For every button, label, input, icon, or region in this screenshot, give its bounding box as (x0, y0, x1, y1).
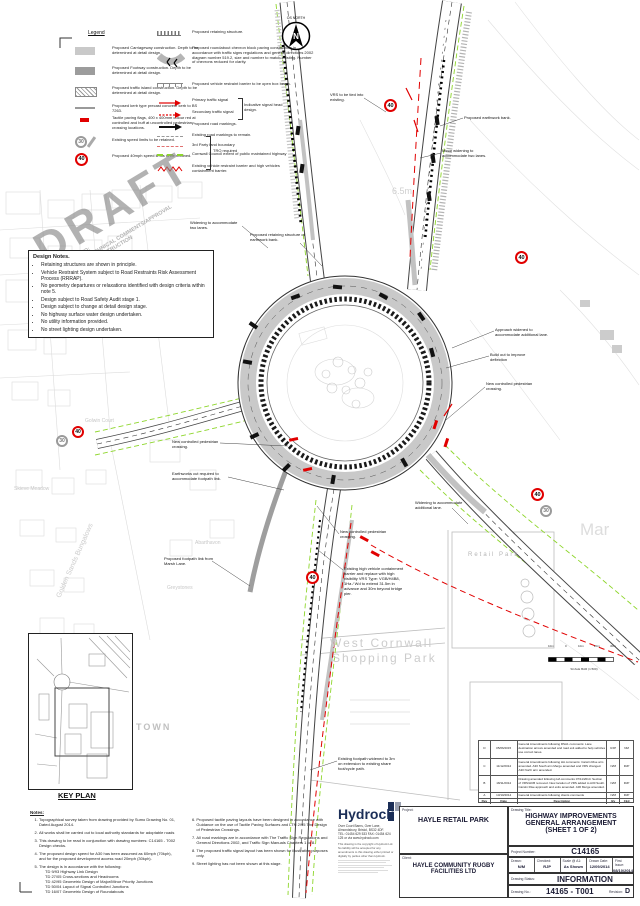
client-label: Client: (400, 855, 507, 861)
design-notes-title: Design Notes. (33, 254, 209, 260)
rev-desc: General Amendments following clients com… (517, 793, 607, 798)
project-label: Project: (400, 807, 507, 813)
scale-bar-graphic (548, 657, 616, 662)
hydrock-smallprint-placeholder (338, 860, 396, 874)
traffic-island-swatch (75, 87, 97, 97)
rev-letter: D (479, 741, 490, 758)
existing-markings-symbol (157, 136, 183, 137)
hydrock-address-2: TEL: 01454 629 533 FAX: 01454 624 125 or… (338, 833, 394, 841)
scale-tick-label: 0 (565, 644, 567, 648)
retaining-structure-symbol (157, 31, 181, 36)
map-label-shopping-1: West Cornwall (330, 636, 433, 650)
design-note: No highway surface water design undertak… (41, 312, 209, 318)
map-label-shopping-2: Shopping Park (332, 651, 437, 665)
annotation: Approach widened to accommodate addition… (495, 327, 553, 337)
annotation: Existing high vehicle containment barrie… (344, 566, 408, 596)
annotation: Proposed earthwork bank. (464, 115, 518, 120)
drawing-number-box: Drawing No.: 14165 - T001 Revision: D (508, 885, 634, 898)
drawing-number: 14165 - T001 (533, 887, 607, 896)
personnel-box: Drawn: N/M Checked: RJP Scale @ A1: As S… (508, 857, 634, 873)
scale-tick-label: 20m (594, 644, 600, 648)
design-note: Design subject to change at detail desig… (41, 304, 209, 310)
map-label-golwin: Golwin Court (85, 418, 114, 424)
map-label-height: 6.5m (392, 186, 412, 196)
footway-swatch (75, 67, 95, 75)
rev-header: Ckd (619, 799, 633, 804)
project-box: Project: HAYLE RETAIL PARK (399, 806, 508, 854)
map-label-greystones: Greystones (167, 585, 193, 591)
hydrock-copyright: This drawing is the copyright of Hydrock… (338, 842, 394, 858)
speed-badge-40: 40 (72, 426, 84, 438)
key-plan-map (29, 634, 131, 788)
scale-tick-label: 10m (578, 644, 584, 648)
design-notes-box: Design Notes. Retaining structures are s… (28, 250, 214, 338)
key-plan-box (28, 633, 133, 790)
note-subitem: TD 16/07 Geometric Design of Roundabouts (45, 889, 177, 894)
note-item: The proposed design speed for A30 has be… (39, 851, 177, 861)
rev-desc: Drawing amended following HA comments 07… (517, 776, 607, 792)
revision-row: C 11/12/2014 General Amendments followin… (479, 758, 633, 775)
note-item: The proposed traffic signal layout has b… (196, 848, 330, 858)
map-label-town: TOWN (136, 722, 171, 732)
chevron-paving-symbol (157, 52, 185, 70)
first-issue-label: First Issue: (613, 858, 633, 868)
notes-section: Notes: Topographical survey taken from d… (30, 810, 330, 897)
legend-item: Proposed road markings. (157, 122, 317, 127)
scale-bar: 10m 0 10m 20m 30m SCALE BAR (1:500) (548, 644, 620, 671)
rev-date: 11/12/2014 (490, 759, 517, 775)
map-label-retail-park: Retail Park (468, 552, 519, 558)
annotation: Earthworks cut required to accommodate f… (172, 471, 228, 481)
note-item: All works shall be carried out to local … (39, 830, 177, 835)
rev-header: By (606, 799, 619, 804)
rev-header: Rev (479, 799, 490, 804)
signal-bracket (238, 98, 243, 120)
revision-label: Revision: (607, 889, 625, 895)
drawn-value: N/M (509, 864, 534, 869)
annotation: Proposed retaining structure of earthwor… (250, 232, 310, 242)
rev-date: 05/06/2015 (490, 741, 517, 758)
note-item: Topographical survey taken from drawing … (39, 817, 177, 827)
legend: Legend Proposed Carriageway construction… (60, 26, 320, 174)
hydrock-block: Hydrock Over Court Barns, Over Lane, Alm… (338, 806, 396, 873)
project-number-box: Project Number: C14165 (508, 846, 634, 857)
note-item: All road markings are in accordance with… (196, 835, 330, 845)
background-blobs (580, 300, 622, 353)
annotation: New controlled pedestrian crossing. (172, 439, 220, 449)
rev-date: 13/10/2014 (490, 793, 517, 798)
note-item: This drawing to be read in conjunction w… (39, 838, 177, 848)
rev-date: 18/11/2014 (490, 776, 517, 792)
carriageway-swatch (75, 47, 95, 55)
trees (521, 579, 535, 637)
legend-item: Existing road markings to remain. (157, 133, 317, 138)
drawing-number-label: Drawing No.: (509, 889, 533, 895)
design-note: Vehicle Restraint System subject to Road… (41, 270, 209, 282)
rev-by: N/M (606, 759, 619, 775)
drawing-status-label: Drawing Status: (509, 876, 537, 882)
legend-item: Proposed Footway construction. Depth to … (75, 66, 215, 76)
vrs-symbol (157, 83, 183, 87)
scale-cell: Scale @ A1: As Shown (561, 858, 588, 872)
roundabout (238, 276, 452, 490)
drawing-title-line2: GENERAL ARRANGEMENT (509, 820, 633, 827)
rev-header: Description (517, 799, 607, 804)
rev-by: N/M (606, 776, 619, 792)
client-name: HAYLE COMMUNITY RUGBY FACILITIES LTD (400, 863, 507, 875)
hydrock-logo-mark (388, 812, 394, 821)
rev-desc: General Amendments following HA comments… (517, 759, 607, 775)
checked-cell: Checked: RJP (535, 858, 561, 872)
revision-header-row: Rev Date Description By Ckd (479, 798, 633, 804)
client-box: Client: HAYLE COMMUNITY RUGBY FACILITIES… (399, 854, 508, 898)
speed-badge-40: 40 (384, 99, 397, 112)
design-notes-list: Retaining structures are shown in princi… (33, 262, 209, 333)
existing-sign-post (87, 136, 96, 148)
legend-item: Proposed roundabout chevron block paving… (157, 46, 317, 65)
scale-tick-label: 30m (610, 644, 616, 648)
annotation: New controlled pedestrian crossing. (340, 529, 388, 539)
annotation: Proposed footpath link from Marsh Lane. (164, 556, 214, 566)
legend-item: Primary traffic signal (157, 98, 317, 103)
speed-badge-30: 30 (540, 505, 552, 517)
speed-40-sign: 40 (75, 153, 88, 166)
annotation: Build out to improve deflection (490, 352, 540, 362)
speed-30-sign: 30 (75, 136, 87, 148)
revision-value: D (625, 888, 633, 895)
rev-ckd: NM (619, 741, 633, 758)
annotation: Existing footpath widened to 3m on exten… (338, 756, 400, 771)
rev-by: N/M (606, 793, 619, 798)
drawn-cell: Drawn: N/M (509, 858, 535, 872)
annotation: Minor widening to accommodate two lanes. (442, 148, 496, 158)
annotation: VRS to be tied into existing. (330, 92, 364, 102)
revision-row: A 13/10/2014 General Amendments followin… (479, 792, 633, 798)
legend-item: Proposed retaining structure. (157, 30, 317, 35)
annotation: Widening to accommodate two lanes. (190, 220, 242, 230)
annotation: New controlled pedestrian crossing. (486, 381, 536, 391)
annotation: Widening to accommodate additional lane. (415, 500, 473, 510)
checked-value: RJP (535, 864, 560, 869)
scale-value: As Shown (561, 864, 587, 869)
drawing-title-line3: (SHEET 1 OF 2) (509, 827, 633, 834)
notes-col2: Proposed tactile paving layouts have bee… (187, 817, 330, 897)
speed-badge-30: 30 (56, 435, 68, 447)
secondary-signal-symbol (157, 111, 183, 119)
legend-item: Secondary traffic signal (157, 110, 317, 115)
rev-letter: B (479, 776, 490, 792)
drawing-status: INFORMATION (537, 875, 633, 884)
rev-letter: A (479, 793, 490, 798)
tactile-paving-swatch (80, 118, 89, 122)
notes-col1: Topographical survey taken from drawing … (30, 817, 177, 897)
map-label-abarthavon: Abarthavon (195, 540, 221, 546)
legend-item: Proposed traffic island construction. De… (75, 86, 215, 96)
rev-by: RJP (606, 741, 619, 758)
legend-title: Legend (88, 30, 105, 36)
project-number-label: Project Number: (509, 849, 538, 855)
scale-tick-label: 10m (548, 644, 554, 648)
key-plan-label: KEY PLAN (58, 791, 96, 800)
scale-bar-caption: SCALE BAR (1:500) (548, 667, 620, 671)
legend-item: 3rd Party land boundary (157, 143, 317, 148)
signal-bracket-label: Indicative signal head design. (244, 102, 284, 112)
legend-item: Proposed vehicle restraint barrier to be… (157, 82, 317, 87)
drawing-title-line1: HIGHWAY IMPROVEMENTS (509, 813, 633, 820)
note-item: Street lighting has not been shown at th… (196, 861, 330, 866)
speed-badge-40: 40 (531, 488, 544, 501)
kerb-line-swatch (75, 107, 95, 109)
first-issue-cell: First Issue: 08/10/2014 (613, 858, 633, 872)
notes-title: Notes: (30, 810, 330, 815)
drawn-date-value: 12/09/2014 (587, 864, 612, 869)
revision-row: D 05/06/2015 General Amendments followin… (479, 741, 633, 758)
rev-ckd: RJP (619, 776, 633, 792)
note-item: The design is in accordance with the fol… (39, 864, 177, 894)
rev-header: Date (490, 799, 517, 804)
rev-ckd: RJP (619, 759, 633, 775)
primary-signal-symbol (157, 99, 183, 107)
road-markings-symbol (157, 123, 183, 131)
drawing-title-box: Drawing Title: HIGHWAY IMPROVEMENTS GENE… (508, 806, 634, 846)
drawn-date-cell: Drawn Date: 12/09/2014 (587, 858, 613, 872)
rev-desc: General Amendments following RSA1 commen… (517, 741, 607, 758)
project-number: C14165 (538, 847, 634, 856)
drawing-status-box: Drawing Status: INFORMATION (508, 873, 634, 885)
revision-table: D 05/06/2015 General Amendments followin… (478, 740, 634, 803)
speed-badge-40: 40 (515, 251, 528, 264)
design-note: No geometry departures or relaxations id… (41, 283, 209, 295)
map-label-skieve: Skieve Meadow (14, 486, 49, 492)
rev-ckd: RJP (619, 793, 633, 798)
design-note: No utility information provided. (41, 319, 209, 325)
design-note: Design subject to Road Safety Audit stag… (41, 297, 209, 303)
speed-badge-40: 40 (306, 571, 319, 584)
hydrock-logo-mark (388, 802, 394, 811)
rev-letter: C (479, 759, 490, 775)
design-note: Retaining structures are shown in princi… (41, 262, 209, 268)
map-label-mar: Mar (580, 520, 609, 540)
note-item: Proposed tactile paving layouts have bee… (196, 817, 330, 832)
revision-row: B 18/11/2014 Drawing amended following H… (479, 775, 633, 792)
design-note: No street lighting design undertaken. (41, 327, 209, 333)
note-sublist: TD 9/93 Highway Link Design TD 27/05 Cro… (39, 869, 177, 894)
drawing-sheet: OS NORTH N Legend Proposed Carriageway c… (0, 0, 640, 906)
project-name: HAYLE RETAIL PARK (400, 817, 507, 824)
